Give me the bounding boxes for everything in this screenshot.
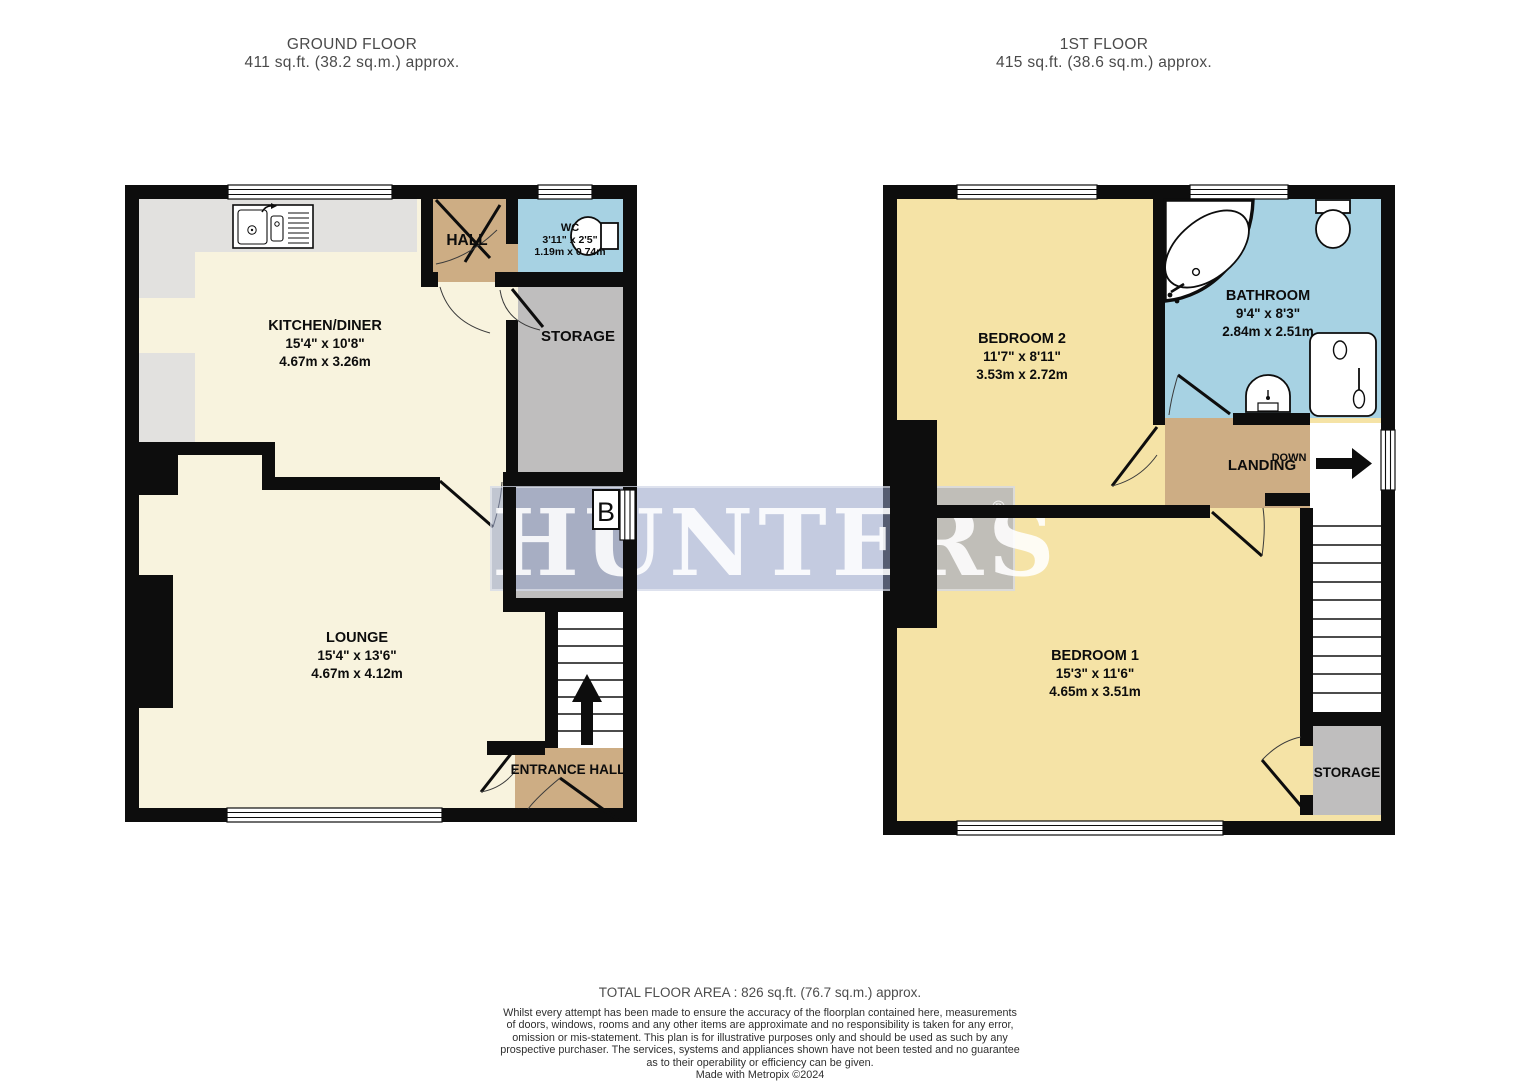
kitchen-dim-metric: 4.67m x 3.26m <box>279 354 371 369</box>
first-floor-area: 415 sq.ft. (38.6 sq.m.) approx. <box>894 54 1314 72</box>
bedroom2-label: BEDROOM 2 <box>978 331 1066 347</box>
lounge-chimney-breast <box>139 575 173 708</box>
bedroom2-window <box>957 185 1097 199</box>
disclaimer-line: Whilst every attempt has been made to en… <box>0 1007 1520 1019</box>
bedroom1-window <box>957 821 1223 835</box>
kitchen-label: KITCHEN/DINER <box>268 318 382 334</box>
bathroom-label: BATHROOM <box>1226 288 1310 304</box>
hall-label: HALL <box>446 232 487 249</box>
basin-icon <box>1246 375 1290 412</box>
disclaimer-line: as to their operability or efficiency ca… <box>0 1057 1520 1069</box>
bedroom2-dim-imperial: 11'7" x 8'11" <box>983 349 1061 364</box>
ground-floor-title-block: GROUND FLOOR 411 sq.ft. (38.2 sq.m.) app… <box>142 36 562 71</box>
kitchen-sink-icon <box>233 203 313 248</box>
lounge-dim-imperial: 15'4" x 13'6" <box>317 648 396 663</box>
entrance-hall-label: ENTRANCE HALL <box>511 762 626 777</box>
footer: TOTAL FLOOR AREA : 826 sq.ft. (76.7 sq.m… <box>0 985 1520 1081</box>
disclaimer-line: prospective purchaser. The services, sys… <box>0 1044 1520 1056</box>
hunters-watermark: HUNTERS ® <box>490 486 1015 591</box>
toilet-icon <box>1316 200 1350 248</box>
bathroom-dim-metric: 2.84m x 2.51m <box>1222 324 1314 339</box>
ground-floor-title: GROUND FLOOR <box>142 36 562 54</box>
entrance-hall-floor <box>515 748 623 808</box>
wc-dim-imperial: 3'11" x 2'5" <box>542 234 597 246</box>
shower-icon <box>1310 333 1376 416</box>
landing-label: LANDING <box>1228 457 1296 474</box>
bedroom2-dim-metric: 3.53m x 2.72m <box>976 367 1068 382</box>
disclaimer-line: of doors, windows, rooms and any other i… <box>0 1019 1520 1031</box>
total-floor-area: TOTAL FLOOR AREA : 826 sq.ft. (76.7 sq.m… <box>0 985 1520 1000</box>
first-floor-title-block: 1ST FLOOR 415 sq.ft. (38.6 sq.m.) approx… <box>894 36 1314 71</box>
lounge-label: LOUNGE <box>326 630 388 646</box>
lounge-pier-upper <box>139 452 178 495</box>
hunters-watermark-text: HUNTERS <box>492 494 1013 593</box>
storage-first-label: STORAGE <box>1314 765 1381 780</box>
first-floor-title: 1ST FLOOR <box>894 36 1314 54</box>
disclaimer-line: omission or mis-statement. This plan is … <box>0 1032 1520 1044</box>
lounge-window <box>227 808 442 822</box>
ground-floor-area: 411 sq.ft. (38.2 sq.m.) approx. <box>142 54 562 72</box>
first-stairs-floor <box>1313 508 1381 712</box>
bedroom1-dim-imperial: 15'3" x 11'6" <box>1056 666 1135 681</box>
made-with-metropix: Made with Metropix ©2024 <box>0 1069 1520 1081</box>
wc-label: WC <box>561 222 579 234</box>
bathroom-window <box>1190 185 1288 199</box>
registered-trademark-icon: ® <box>990 498 1007 518</box>
bedroom1-label: BEDROOM 1 <box>1051 648 1139 664</box>
storage-top-label: STORAGE <box>541 328 615 345</box>
kitchen-dim-imperial: 15'4" x 10'8" <box>285 336 364 351</box>
wc-window <box>538 185 592 199</box>
disclaimer: Whilst every attempt has been made to en… <box>0 1007 1520 1081</box>
wc-dim-metric: 1.19m x 0.74m <box>534 246 605 258</box>
lounge-dim-metric: 4.67m x 4.12m <box>311 666 403 681</box>
stairs-window <box>1381 430 1395 490</box>
bathroom-dim-imperial: 9'4" x 8'3" <box>1236 306 1300 321</box>
kitchen-window <box>228 185 392 199</box>
bedroom1-dim-metric: 4.65m x 3.51m <box>1049 684 1141 699</box>
